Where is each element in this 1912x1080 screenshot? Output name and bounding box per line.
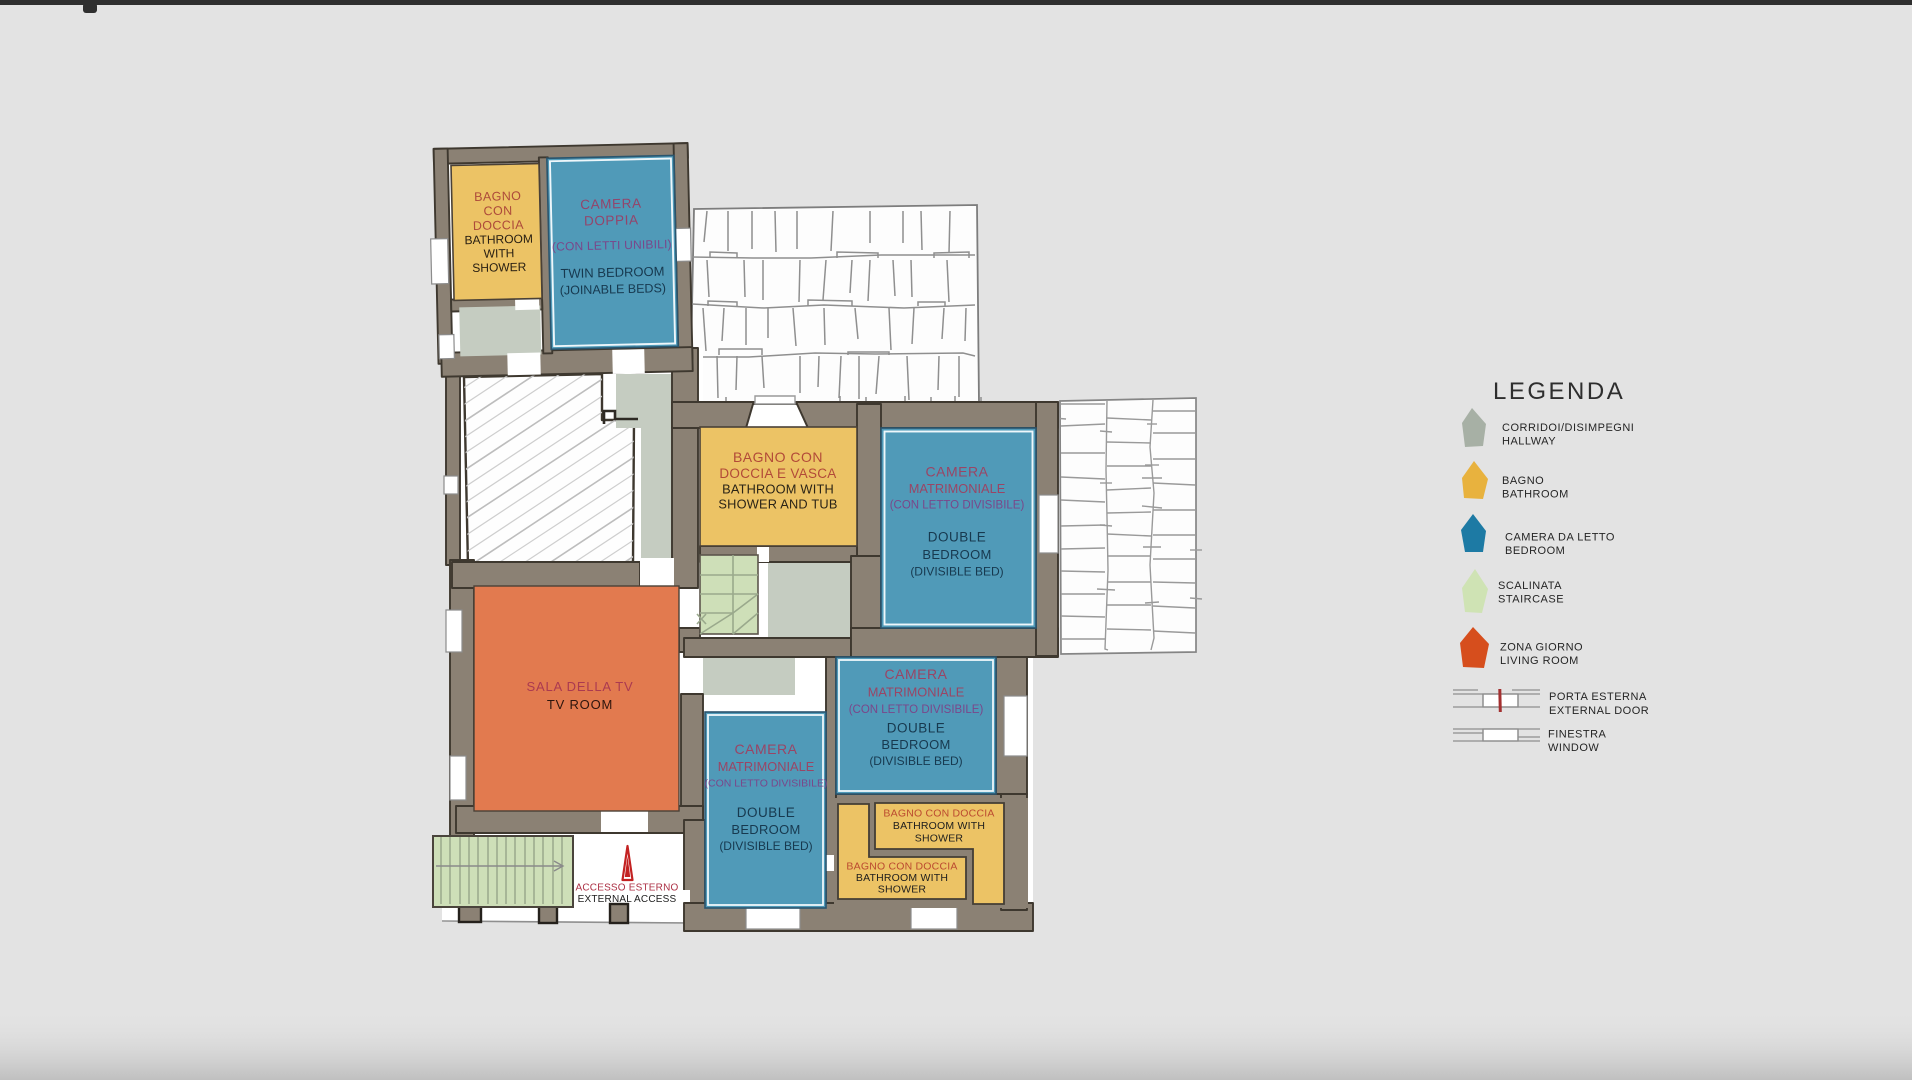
svg-text:(JOINABLE BEDS): (JOINABLE BEDS)	[560, 281, 667, 297]
svg-text:DOUBLE: DOUBLE	[928, 530, 987, 545]
svg-text:BAGNO CON: BAGNO CON	[733, 449, 823, 465]
svg-text:BATHROOM WITH: BATHROOM WITH	[856, 872, 948, 884]
svg-text:CAMERA: CAMERA	[735, 741, 798, 757]
svg-text:BATHROOM WITH: BATHROOM WITH	[722, 482, 834, 497]
svg-text:ACCESSO ESTERNO: ACCESSO ESTERNO	[575, 883, 678, 894]
svg-text:BEDROOM: BEDROOM	[1505, 545, 1565, 557]
svg-text:(CON LETTO DIVISIBILE): (CON LETTO DIVISIBILE)	[705, 778, 828, 790]
svg-text:MATRIMONIALE: MATRIMONIALE	[909, 481, 1005, 496]
svg-text:BATHROOM: BATHROOM	[1502, 489, 1569, 501]
svg-text:CAMERA: CAMERA	[580, 196, 642, 212]
svg-text:MATRIMONIALE: MATRIMONIALE	[718, 759, 814, 774]
svg-text:TV ROOM: TV ROOM	[547, 697, 613, 712]
svg-text:DOUBLE: DOUBLE	[737, 805, 796, 820]
svg-text:CORRIDOI/DISIMPEGNI: CORRIDOI/DISIMPEGNI	[1502, 422, 1634, 434]
svg-text:BATHROOM WITH: BATHROOM WITH	[893, 820, 985, 832]
svg-text:(CON LETTI UNIBILI): (CON LETTI UNIBILI)	[552, 237, 672, 254]
svg-text:PORTA ESTERNA: PORTA ESTERNA	[1549, 691, 1647, 703]
svg-text:DOCCIA: DOCCIA	[473, 218, 525, 233]
svg-text:MATRIMONIALE: MATRIMONIALE	[868, 685, 964, 700]
svg-text:SHOWER AND TUB: SHOWER AND TUB	[718, 497, 837, 512]
svg-text:SHOWER: SHOWER	[472, 260, 527, 275]
svg-text:SALA DELLA TV: SALA DELLA TV	[527, 679, 634, 694]
svg-text:WITH: WITH	[484, 246, 515, 261]
svg-text:BAGNO CON DOCCIA: BAGNO CON DOCCIA	[883, 808, 994, 820]
svg-text:BEDROOM: BEDROOM	[922, 547, 991, 562]
svg-text:FINESTRA: FINESTRA	[1548, 729, 1607, 741]
svg-text:DOUBLE: DOUBLE	[887, 721, 946, 736]
svg-text:HALLWAY: HALLWAY	[1502, 436, 1556, 448]
svg-text:BEDROOM: BEDROOM	[731, 822, 800, 837]
svg-text:CAMERA DA LETTO: CAMERA DA LETTO	[1505, 532, 1615, 544]
svg-text:(DIVISIBLE BED): (DIVISIBLE BED)	[869, 754, 962, 768]
svg-text:DOCCIA E VASCA: DOCCIA E VASCA	[719, 466, 836, 481]
svg-text:EXTERNAL DOOR: EXTERNAL DOOR	[1549, 705, 1649, 717]
svg-text:(CON LETTO DIVISIBILE): (CON LETTO DIVISIBILE)	[849, 704, 984, 716]
svg-text:BEDROOM: BEDROOM	[881, 737, 950, 752]
svg-text:TWIN BEDROOM: TWIN BEDROOM	[560, 264, 664, 281]
svg-text:SHOWER: SHOWER	[878, 884, 927, 896]
svg-text:BAGNO: BAGNO	[474, 189, 521, 204]
svg-text:SCALINATA: SCALINATA	[1498, 580, 1562, 592]
svg-text:STAIRCASE: STAIRCASE	[1498, 594, 1564, 606]
svg-text:BATHROOM: BATHROOM	[464, 232, 533, 248]
svg-text:LIVING ROOM: LIVING ROOM	[1500, 655, 1579, 667]
svg-text:EXTERNAL ACCESS: EXTERNAL ACCESS	[578, 894, 677, 905]
svg-text:(DIVISIBLE BED): (DIVISIBLE BED)	[910, 565, 1003, 579]
svg-text:BAGNO: BAGNO	[1502, 475, 1544, 487]
svg-text:WINDOW: WINDOW	[1548, 742, 1599, 754]
svg-text:DOPPIA: DOPPIA	[584, 212, 639, 228]
svg-text:LEGENDA: LEGENDA	[1493, 378, 1625, 405]
svg-text:SHOWER: SHOWER	[915, 833, 964, 845]
svg-text:CAMERA: CAMERA	[926, 464, 989, 480]
svg-text:(DIVISIBLE BED): (DIVISIBLE BED)	[719, 839, 812, 853]
svg-text:CAMERA: CAMERA	[885, 666, 948, 682]
svg-text:CON: CON	[483, 204, 512, 219]
svg-text:(CON LETTO DIVISIBILE): (CON LETTO DIVISIBILE)	[890, 500, 1025, 512]
svg-text:BAGNO CON DOCCIA: BAGNO CON DOCCIA	[846, 861, 957, 873]
svg-text:ZONA GIORNO: ZONA GIORNO	[1500, 642, 1583, 654]
